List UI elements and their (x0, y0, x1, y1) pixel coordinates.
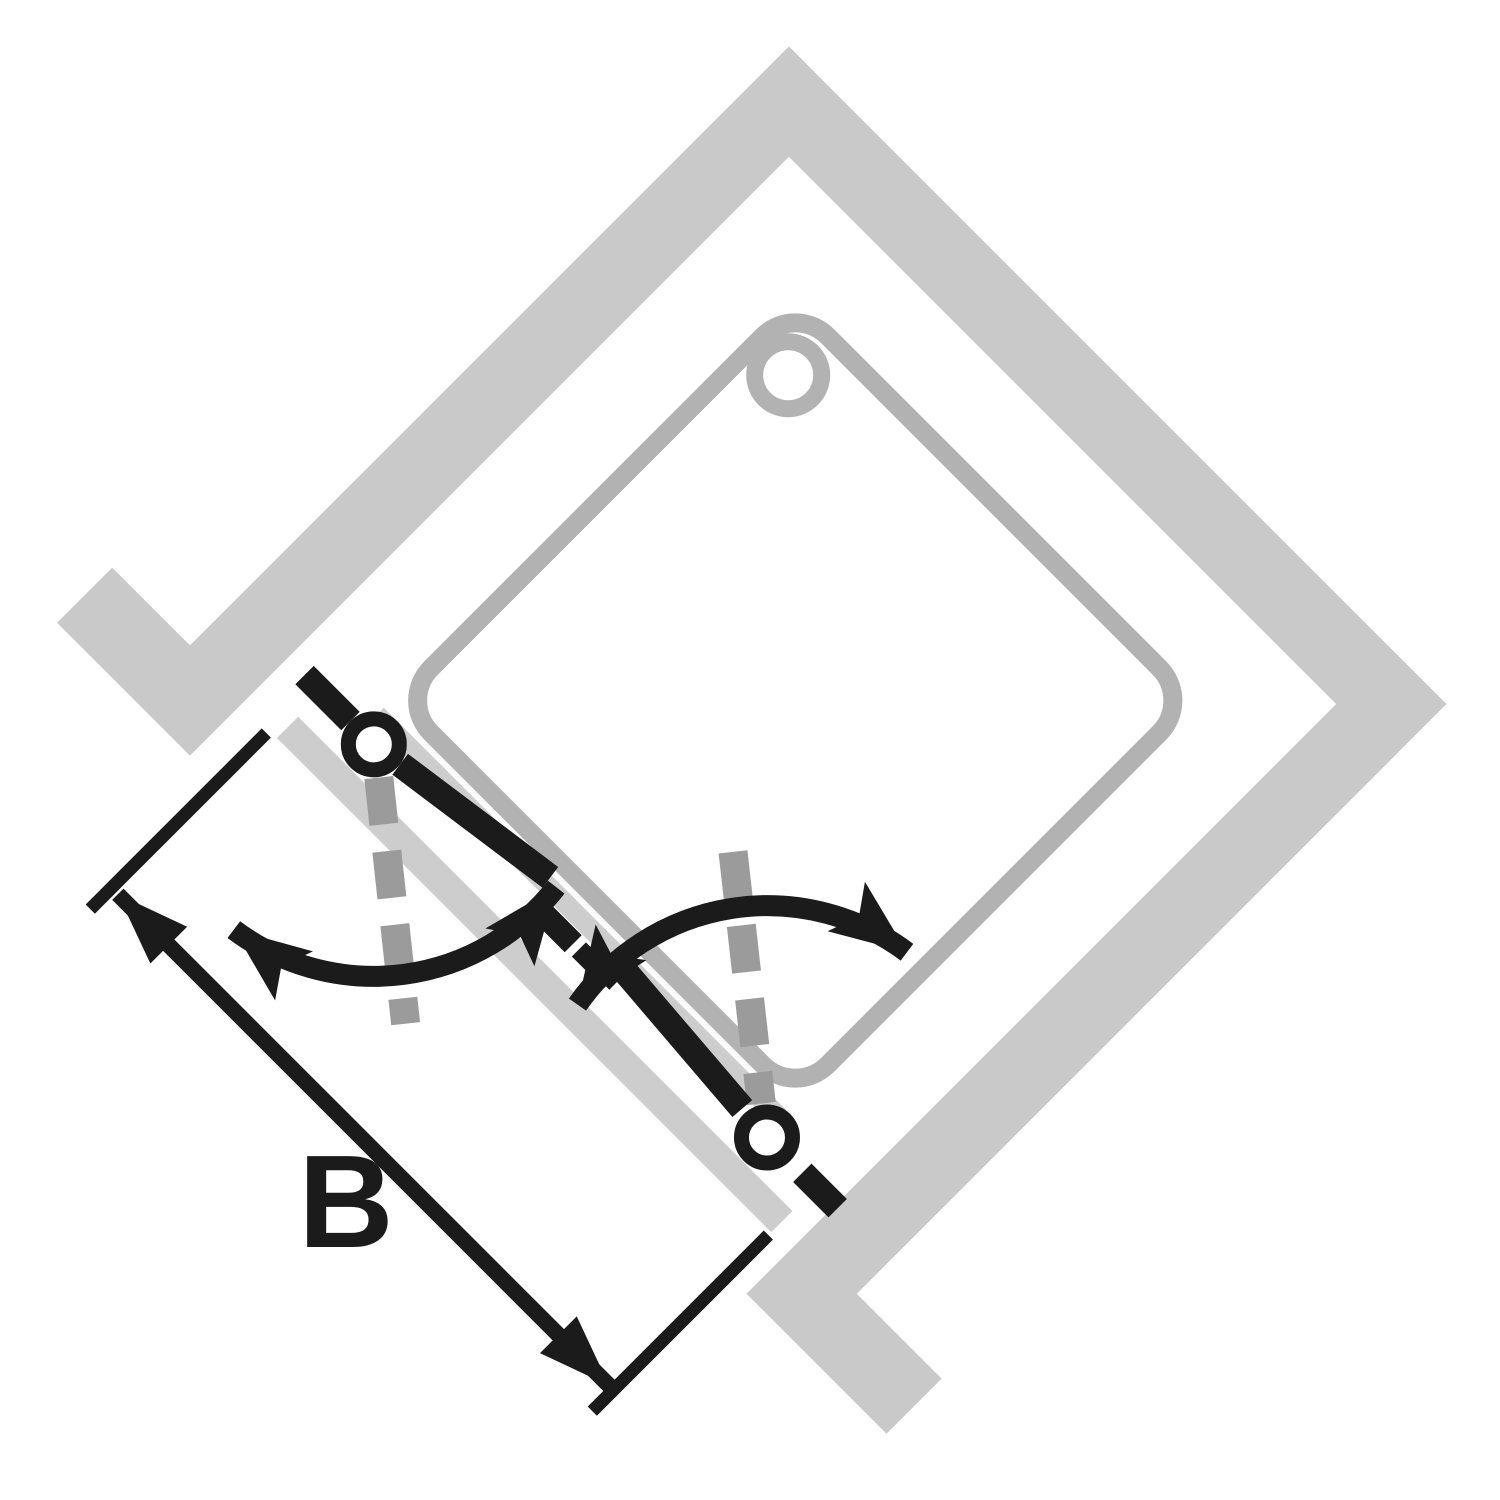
diagram-canvas: B (0, 0, 1500, 1500)
left-door-frame-dash (295, 666, 359, 730)
dimension-extension-right (592, 1235, 768, 1411)
rotated-scene (0, 0, 1500, 1500)
left-swing-arrowhead-out-icon (215, 905, 313, 1000)
right-swing-arrowhead-in-icon (828, 882, 926, 977)
dimension-extension-left (90, 733, 266, 909)
dimension-label-b: B (296, 1136, 396, 1276)
room-walls (57, 0, 1500, 1443)
shower-enclosure-diagram (0, 0, 1500, 1500)
